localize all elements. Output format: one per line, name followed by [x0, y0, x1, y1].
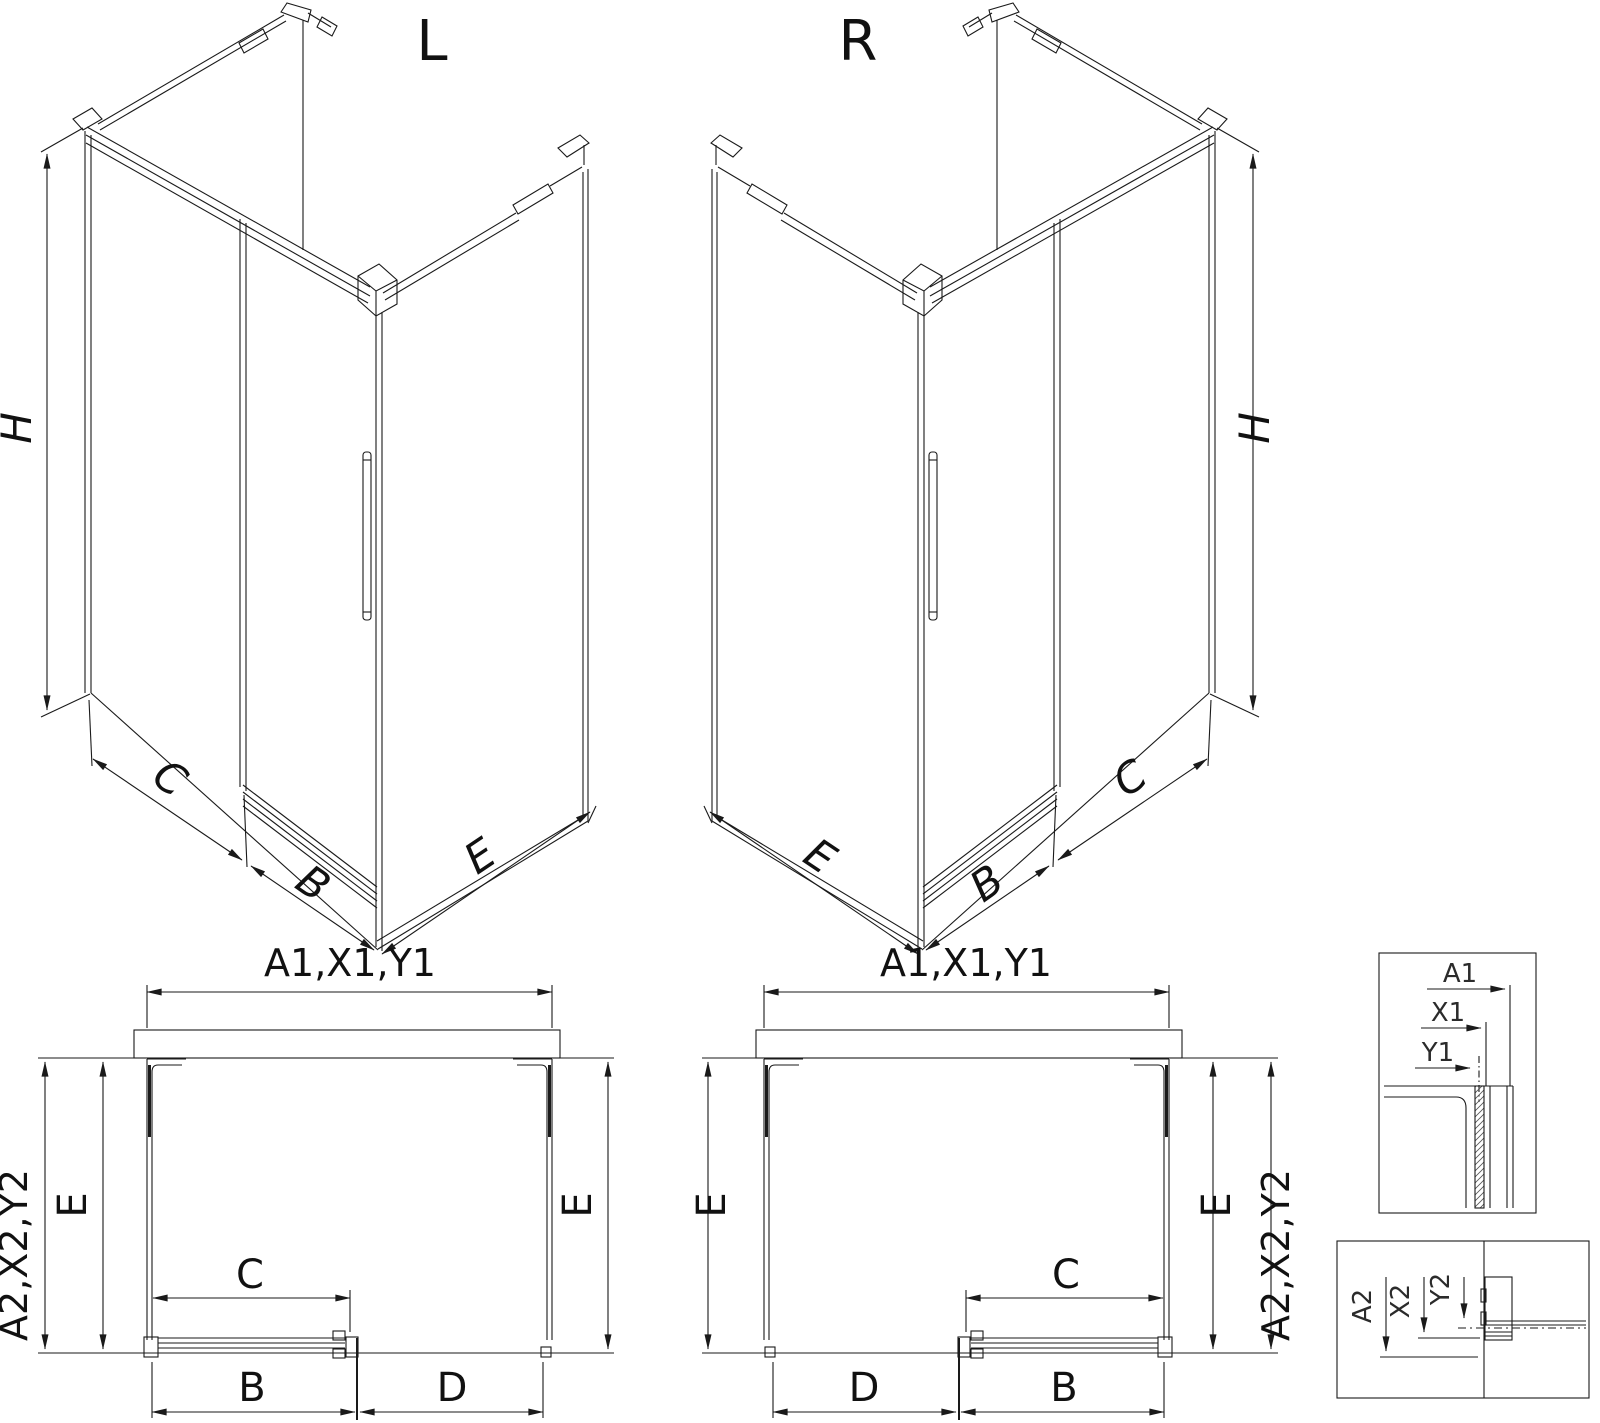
plan-left-dim-width: A1,X1,Y1 [264, 941, 436, 985]
plan-left-wall-hatch [134, 1030, 560, 1058]
iso-right-dim-b: B [961, 855, 1013, 912]
plan-left-dim-b: B [238, 1365, 265, 1411]
iso-right-title: R [839, 9, 878, 74]
plan-left-dim-e-right: E [555, 1192, 601, 1217]
plan-view-right [702, 985, 1278, 1420]
plan-left-dim-e-left: E [50, 1192, 96, 1217]
plan-right-dim-e-right: E [1194, 1192, 1240, 1217]
plan-right-dim-d: D [849, 1365, 880, 1411]
plan-right-dim-e-left: E [689, 1192, 735, 1217]
plan-left-dim-c: C [236, 1252, 264, 1298]
plan-right-dim-width: A1,X1,Y1 [880, 941, 1052, 985]
iso-right-dim-h: H [1230, 412, 1279, 444]
detail-view-width [1379, 953, 1536, 1213]
detail-depth-label-x2: X2 [1386, 1284, 1416, 1318]
technical-drawing-page: L H C B E R H C B E A1,X1,Y1 A2,X2,Y2 E … [0, 0, 1600, 1423]
plan-view-left [38, 985, 614, 1420]
plan-right-wall-hatch [756, 1030, 1182, 1058]
plan-left-dim-depth: A2,X2,Y2 [0, 1169, 36, 1341]
detail-width-label-a1: A1 [1443, 959, 1477, 989]
iso-left-dim-c: C [144, 749, 196, 806]
plan-right-dim-depth: A2,X2,Y2 [1254, 1169, 1298, 1341]
plan-right-dim-c: C [1052, 1252, 1080, 1298]
iso-left-dim-h: H [0, 412, 41, 444]
iso-view-right [704, 3, 1259, 954]
plan-right-dim-b: B [1050, 1365, 1077, 1411]
detail-width-label-x1: X1 [1431, 998, 1465, 1028]
plan-left-dim-d: D [437, 1365, 468, 1411]
shower-enclosure-drawing: L H C B E R H C B E A1,X1,Y1 A2,X2,Y2 E … [0, 0, 1600, 1423]
detail-width-label-y1: Y1 [1421, 1038, 1454, 1068]
iso-left-title: L [416, 9, 447, 74]
iso-left-dim-b: B [287, 855, 339, 912]
detail-depth-label-a2: A2 [1348, 1289, 1378, 1323]
iso-right-dim-c: C [1104, 749, 1156, 806]
detail-depth-label-y2: Y2 [1426, 1273, 1456, 1306]
iso-view-left [41, 3, 596, 954]
